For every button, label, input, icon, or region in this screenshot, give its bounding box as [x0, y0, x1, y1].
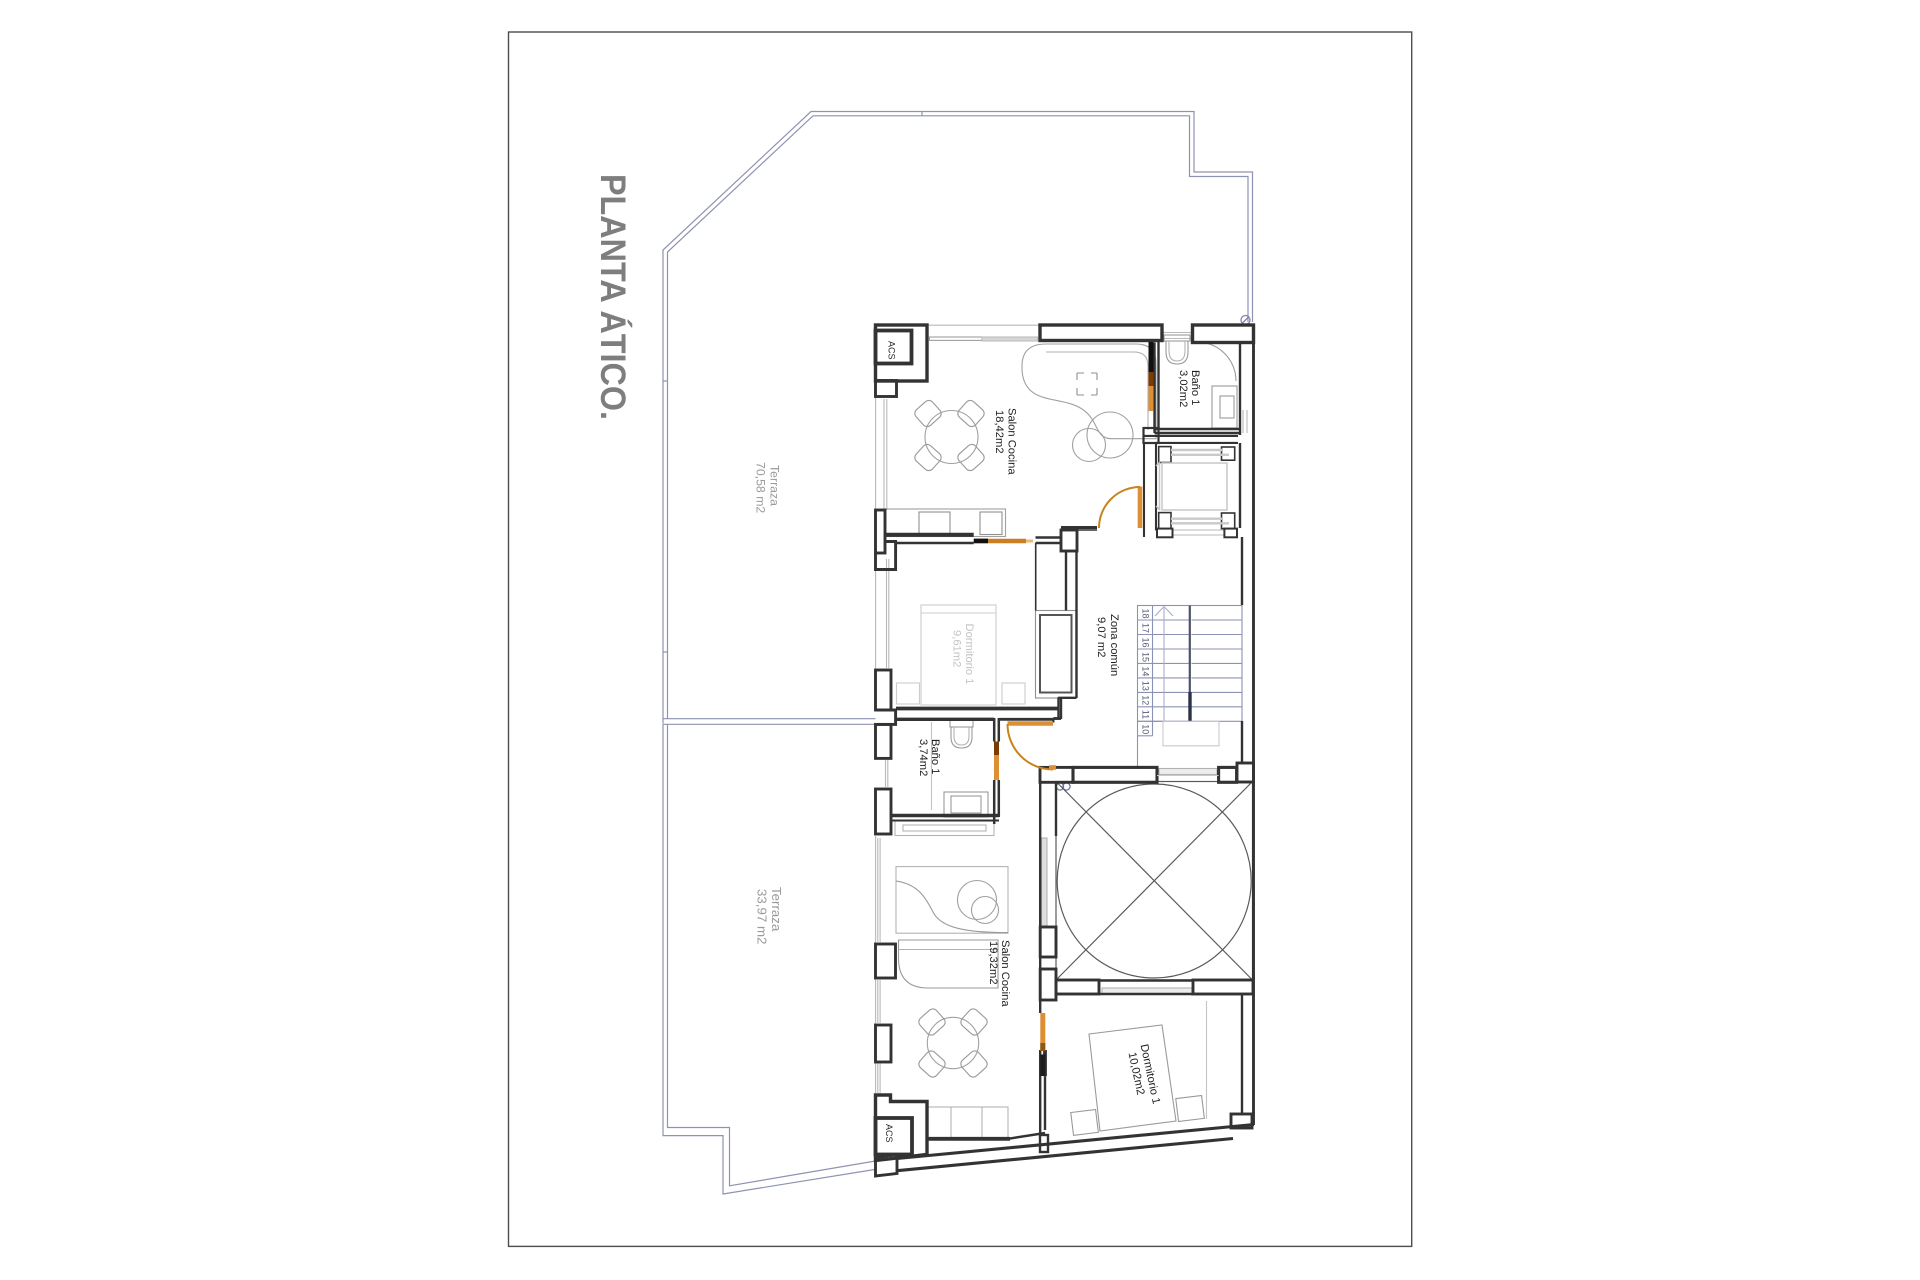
svg-text:PLANTA ÁTICO.: PLANTA ÁTICO.: [593, 174, 633, 420]
svg-text:9,07 m2: 9,07 m2: [1095, 617, 1107, 657]
svg-text:10: 10: [1141, 724, 1151, 734]
svg-text:Salon Cocina: Salon Cocina: [1006, 408, 1018, 475]
svg-text:3,02m2: 3,02m2: [1177, 370, 1189, 407]
svg-text:Terraza: Terraza: [768, 465, 782, 506]
svg-text:13: 13: [1141, 681, 1151, 691]
svg-text:17: 17: [1141, 623, 1151, 633]
svg-text:14: 14: [1141, 666, 1151, 676]
svg-text:70,58 m2: 70,58 m2: [754, 462, 768, 513]
svg-text:Salon Cocina: Salon Cocina: [999, 940, 1011, 1007]
svg-text:ACS: ACS: [884, 1124, 894, 1143]
svg-text:Zona común: Zona común: [1108, 614, 1120, 676]
svg-text:18,42m2: 18,42m2: [993, 410, 1005, 454]
svg-text:Baño 1: Baño 1: [929, 739, 941, 774]
svg-text:15: 15: [1141, 652, 1151, 662]
svg-text:12: 12: [1141, 695, 1151, 705]
svg-text:Dormitorio 1: Dormitorio 1: [963, 624, 975, 685]
svg-text:18: 18: [1141, 609, 1151, 619]
svg-text:Terraza: Terraza: [769, 887, 784, 932]
svg-text:9,61m2: 9,61m2: [951, 630, 963, 667]
svg-text:16: 16: [1141, 638, 1151, 648]
svg-text:ACS: ACS: [887, 341, 897, 360]
svg-text:Baño 1: Baño 1: [1189, 370, 1201, 405]
svg-text:3,74m2: 3,74m2: [917, 739, 929, 776]
svg-text:11: 11: [1141, 710, 1151, 719]
svg-text:19,32m2: 19,32m2: [987, 941, 999, 985]
svg-text:33,97 m2: 33,97 m2: [755, 889, 770, 944]
